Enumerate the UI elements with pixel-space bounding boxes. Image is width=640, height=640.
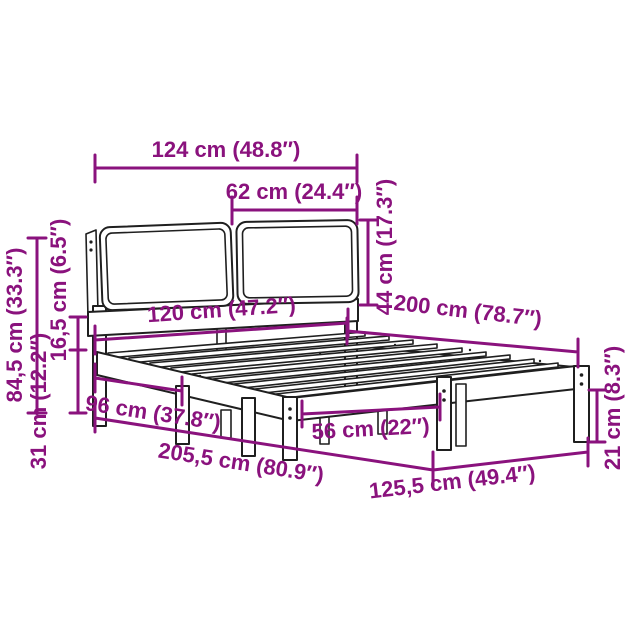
screw-dot: [288, 416, 292, 420]
dim-leg-height-label: 21 cm (8.3″): [600, 346, 625, 470]
slat-dot: [539, 360, 541, 362]
dim-headboard-panel-width-label: 62 cm (24.4″): [226, 179, 363, 204]
dim-bed-length-label: 200 cm (78.7″): [393, 290, 544, 332]
dim-headboard-panel-height-label: 44 cm (17.3″): [372, 179, 397, 316]
dim-side-rail-height: 16,5 cm (6.5″): [46, 219, 86, 362]
diagram-svg: 124 cm (48.8″) 62 cm (24.4″) 44 cm (17.3…: [0, 0, 640, 640]
center-support-leg: [221, 410, 231, 438]
screw-dot: [442, 389, 446, 393]
screw-dot: [442, 398, 446, 402]
dim-headboard-height-label: 84,5 cm (33.3″): [2, 248, 27, 403]
headboard-right-panel-inner: [242, 226, 352, 298]
screw-dot: [89, 240, 92, 243]
dim-under-bed-clearance-label: 31 cm (12.2″): [26, 333, 51, 470]
dim-foot-leg-spacing-label: 56 cm (22″): [311, 413, 430, 444]
center-rail-foot-leg: [456, 384, 466, 446]
dim-total-width-label: 124 cm (48.8″): [152, 137, 301, 162]
slat-dot: [394, 344, 396, 346]
dim-headboard-panel-width: 62 cm (24.4″): [226, 179, 363, 224]
screw-dot: [288, 407, 292, 411]
headboard-right-panel: [236, 220, 358, 304]
headboard-left-panel-inner: [106, 229, 228, 305]
bed-frame-dimension-diagram: 124 cm (48.8″) 62 cm (24.4″) 44 cm (17.3…: [0, 0, 640, 640]
side-leg: [242, 398, 255, 456]
screw-dot: [580, 382, 584, 386]
dim-leg-height: 21 cm (8.3″): [589, 346, 625, 470]
foot-right-leg: [574, 366, 589, 442]
screw-dot: [580, 373, 584, 377]
foot-left-leg: [283, 397, 297, 460]
slat-dot: [319, 352, 321, 354]
dim-overall-width-label: 125,5 cm (49.4″): [368, 460, 537, 504]
screw-dot: [89, 248, 92, 251]
dim-total-width: 124 cm (48.8″): [95, 137, 357, 182]
slat-dot: [469, 349, 471, 351]
dim-headboard-panel-height: 44 cm (17.3″): [360, 179, 397, 316]
dim-overall-width: 125,5 cm (49.4″): [368, 438, 588, 503]
